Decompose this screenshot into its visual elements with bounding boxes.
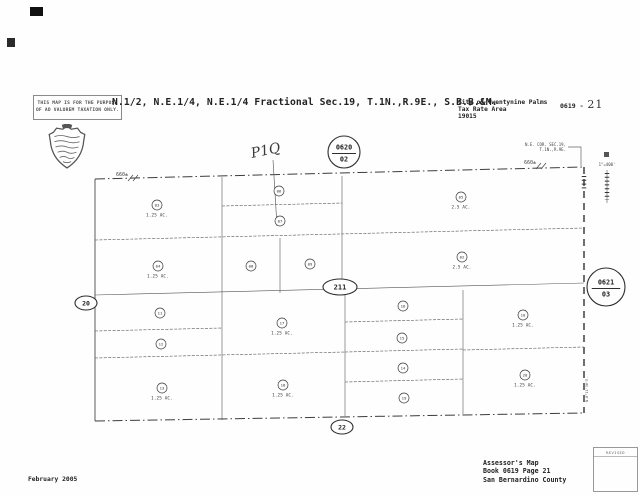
ref-label: 22 — [338, 423, 346, 431]
parcel-acreage: 1.25 AC. — [147, 274, 169, 279]
parcel-number: 17 — [280, 321, 285, 326]
parcel-number: 12 — [159, 342, 164, 347]
parcel-number: 20 — [523, 373, 528, 378]
page-ref-0620: 062002 — [328, 136, 360, 168]
parcel-acreage: 2.5 AC. — [452, 265, 471, 270]
assessor-line2: Book 0619 Page 21 — [483, 467, 566, 475]
parcel-number: 14 — [401, 366, 406, 371]
parcel-marker: 201.25 AC. — [514, 370, 536, 388]
parcel-number: 19 — [402, 396, 407, 401]
parcel-number: 18 — [281, 383, 286, 388]
parcel-number: 05 — [459, 195, 464, 200]
parcel-map-canvas: 660± 660± N.E. COR. SEC.19, T.1N.,R.9E. … — [0, 0, 640, 495]
handwritten-annotation: P1Q — [249, 140, 283, 162]
parcel-marker: 09 — [305, 259, 315, 269]
parcel-acreage: 1.25 AC. — [271, 331, 293, 336]
parcel-marker: 19 — [399, 393, 409, 403]
parcel-marker: 15 — [397, 333, 407, 343]
ref-book: 0620 — [336, 144, 352, 152]
parcel-acreage: 1.25 AC. — [146, 213, 168, 218]
parcel-number: 03 — [155, 203, 160, 208]
parcel-marker: 041.25 AC. — [147, 261, 169, 279]
parcel-number: 04 — [156, 264, 161, 269]
parcel-marker: 131.25 AC. — [151, 383, 173, 401]
page-ref-0621: 062103 — [587, 268, 625, 306]
parcel-number: 11 — [158, 311, 163, 316]
map-text-annotations: 660± 660± N.E. COR. SEC.19, T.1N.,R.9E. … — [116, 140, 615, 402]
ref-page: 03 — [602, 291, 610, 299]
parcel-number: 16 — [401, 304, 406, 309]
parcel-number: 09 — [308, 262, 313, 267]
parcel-marker: 07 — [275, 216, 285, 226]
page-ref-20: 20 — [75, 296, 97, 310]
scale-label: 1"=400' — [599, 162, 616, 167]
parcel-number: 15 — [400, 336, 405, 341]
parcel-acreage: 1.25 AC. — [514, 383, 536, 388]
parcel-acreage: 1.25 AC. — [151, 396, 173, 401]
parcel-number: 02 — [460, 255, 465, 260]
page-ref-211: 211 — [323, 279, 357, 295]
bearing-label: N.0°11'30"E. — [585, 377, 589, 402]
parcel-number: 10 — [521, 313, 526, 318]
parcel-marker: 171.25 AC. — [271, 318, 293, 336]
parcel-acreage: 1.25 AC. — [512, 323, 534, 328]
dimension-label: 660± — [116, 172, 128, 178]
assessor-line3: San Bernardino County — [483, 476, 566, 484]
ref-book: 0621 — [598, 279, 614, 287]
north-arrow-icon — [604, 152, 609, 157]
survey-marks — [128, 147, 609, 226]
dimension-label: 660± — [524, 160, 536, 166]
ref-label: 20 — [82, 299, 90, 307]
assessor-line1: Assessor's Map — [483, 459, 566, 467]
parcel-number: 07 — [278, 219, 283, 224]
parcel-marker: 052.5 AC. — [451, 192, 470, 210]
revised-header: REVISED — [594, 448, 637, 457]
parcel-marker: 06 — [274, 186, 284, 196]
ref-page: 02 — [340, 156, 348, 164]
parcel-marker: 181.25 AC. — [272, 380, 294, 398]
parcel-marker: 12 — [156, 339, 166, 349]
parcel-acreage: 1.25 AC. — [272, 393, 294, 398]
parcel-marker: 11 — [155, 308, 165, 318]
parcel-marker: 16 — [398, 301, 408, 311]
assessor-block: Assessor's Map Book 0619 Page 21 San Ber… — [483, 459, 566, 484]
parcel-acreage: 2.5 AC. — [451, 205, 470, 210]
parcel-number: 06 — [277, 189, 282, 194]
parcel-marker: 14 — [398, 363, 408, 373]
corner-note-line2: T.1N.,R.9E. — [540, 147, 567, 152]
map-interior-lines — [95, 176, 584, 420]
revised-table: REVISED — [593, 447, 638, 492]
ref-label: 211 — [334, 284, 347, 292]
parcel-marker: 031.25 AC. — [146, 200, 168, 218]
parcel-marker: 08 — [246, 261, 256, 271]
parcel-marker: 101.25 AC. — [512, 310, 534, 328]
map-date: February 2005 — [28, 476, 77, 483]
parcel-number: 13 — [160, 386, 165, 391]
page-ref-22: 22 — [331, 420, 353, 434]
parcel-number: 08 — [249, 264, 254, 269]
parcel-marker: 022.5 AC. — [452, 252, 471, 270]
